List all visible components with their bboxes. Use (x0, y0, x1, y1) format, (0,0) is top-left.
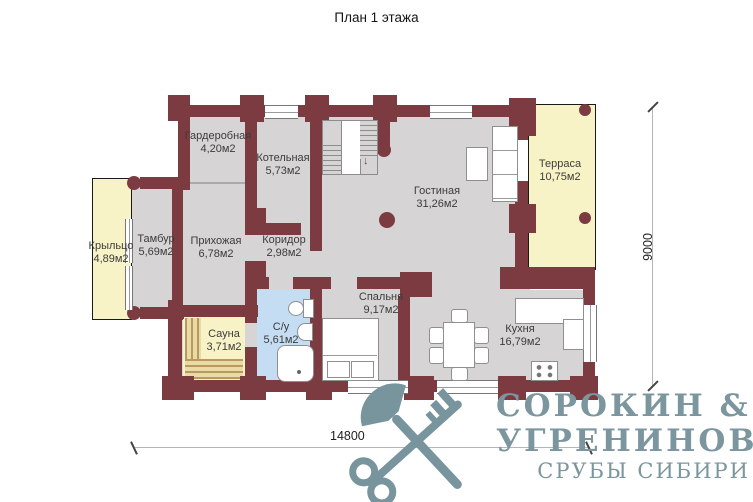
wall-segment (168, 105, 530, 117)
logo-line2: УГРЕНИНОВ (496, 423, 750, 459)
chair (451, 309, 468, 323)
window (125, 266, 133, 310)
bed-pillow (327, 361, 350, 378)
room-label-boiler: Котельная5,73м2 (233, 152, 333, 178)
wall-segment (583, 289, 595, 306)
wall-segment (357, 277, 400, 289)
log-end (377, 143, 391, 157)
wall-segment (245, 261, 266, 288)
log-column (379, 212, 395, 228)
dimension-tick (130, 441, 138, 455)
wardrobe-door-line (190, 182, 245, 184)
log-end (579, 212, 591, 224)
toilet-bowl (288, 301, 304, 316)
page-title: План 1 этажа (0, 10, 753, 25)
log-end (127, 176, 141, 190)
wall-segment (500, 267, 595, 289)
terrace-area (528, 104, 596, 270)
coffee-table (466, 147, 488, 181)
wall-segment (373, 95, 397, 122)
window (430, 105, 472, 119)
window (265, 105, 298, 119)
stove (531, 361, 558, 381)
wall-segment (162, 376, 194, 400)
logo-line3: СРУБЫ СИБИРИ (496, 459, 750, 483)
shower-drain-dot (297, 370, 301, 374)
floor-plan-canvas: План 1 этажа ↓ Гардероб (0, 0, 753, 502)
wall-segment (240, 95, 264, 122)
wall-segment (168, 95, 190, 121)
wall-segment (310, 105, 322, 251)
window (583, 305, 597, 362)
shower (277, 345, 314, 382)
bed-blanket-line (323, 355, 377, 356)
dimension-height-label: 9000 (641, 217, 655, 277)
chair (429, 347, 444, 364)
room-label-corridor: Коридор2,98м2 (234, 234, 334, 260)
chair (451, 367, 468, 381)
log-end (579, 104, 591, 116)
wall-segment (245, 208, 266, 231)
toilet-tank (303, 299, 314, 318)
chair (474, 347, 489, 364)
wall-segment (245, 290, 257, 323)
room-label-terrace: Терраса10,75м2 (510, 158, 610, 184)
wall-segment (305, 95, 329, 122)
dimension-tick (647, 101, 658, 112)
room-label-bedroom: Спальня9,17м2 (331, 291, 431, 317)
bed-pillow (351, 361, 374, 378)
stair-down-arrow-icon: ↓ (363, 155, 369, 167)
logo-line1: СОРОКИН & (496, 388, 750, 424)
wall-segment (240, 376, 266, 400)
room-label-kitchen: Кухня16,79м2 (470, 323, 570, 349)
chair (429, 327, 444, 344)
stair-flight-right (360, 121, 377, 159)
axe-key-icon (333, 380, 495, 502)
room-label-living: Гостиная31,26м2 (387, 185, 487, 211)
room-label-bathroom: С/у5,61м2 (246, 321, 316, 347)
wall-segment (509, 204, 536, 233)
stair-landing (341, 121, 361, 174)
